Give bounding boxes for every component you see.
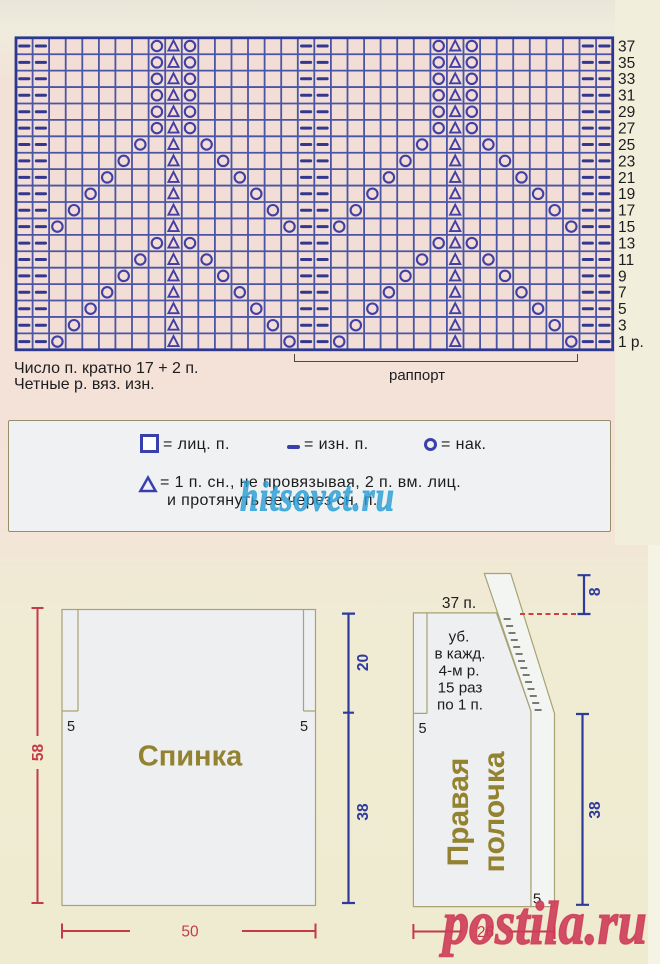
svg-text:37: 37 xyxy=(618,38,635,55)
svg-text:в кажд.: в кажд. xyxy=(435,646,486,663)
svg-text:27: 27 xyxy=(618,121,635,138)
svg-text:11: 11 xyxy=(618,252,634,269)
svg-text:8: 8 xyxy=(587,587,604,596)
svg-text:уб.: уб. xyxy=(449,629,470,646)
svg-text:15: 15 xyxy=(618,219,635,236)
svg-text:35: 35 xyxy=(618,55,635,72)
svg-text:17: 17 xyxy=(618,203,635,220)
svg-text:4-м р.: 4-м р. xyxy=(439,663,480,680)
svg-text:по 1 п.: по 1 п. xyxy=(437,697,483,714)
svg-text:13: 13 xyxy=(618,236,635,253)
svg-text:38: 38 xyxy=(587,801,604,819)
svg-text:3: 3 xyxy=(618,318,627,335)
svg-text:50: 50 xyxy=(181,924,199,941)
svg-text:58: 58 xyxy=(30,744,47,762)
svg-text:31: 31 xyxy=(618,88,635,105)
svg-text:7: 7 xyxy=(618,285,627,302)
svg-text:23: 23 xyxy=(618,153,635,170)
svg-text:Спинка: Спинка xyxy=(138,741,243,773)
svg-text:19: 19 xyxy=(618,186,635,203)
svg-text:1 р.: 1 р. xyxy=(618,334,644,351)
svg-text:5: 5 xyxy=(67,719,75,735)
svg-text:полочка: полочка xyxy=(478,751,511,872)
svg-text:29: 29 xyxy=(618,104,635,121)
svg-text:5: 5 xyxy=(418,721,426,737)
svg-text:37 п.: 37 п. xyxy=(442,595,476,612)
svg-text:25: 25 xyxy=(618,137,635,154)
svg-text:5: 5 xyxy=(618,301,627,318)
svg-text:9: 9 xyxy=(618,268,627,285)
svg-text:21: 21 xyxy=(618,170,635,187)
svg-text:5: 5 xyxy=(300,719,308,735)
svg-text:15 раз: 15 раз xyxy=(438,680,483,697)
svg-text:33: 33 xyxy=(618,71,635,88)
svg-text:38: 38 xyxy=(355,803,372,821)
svg-text:20: 20 xyxy=(355,654,372,671)
svg-text:Правая: Правая xyxy=(442,758,475,867)
